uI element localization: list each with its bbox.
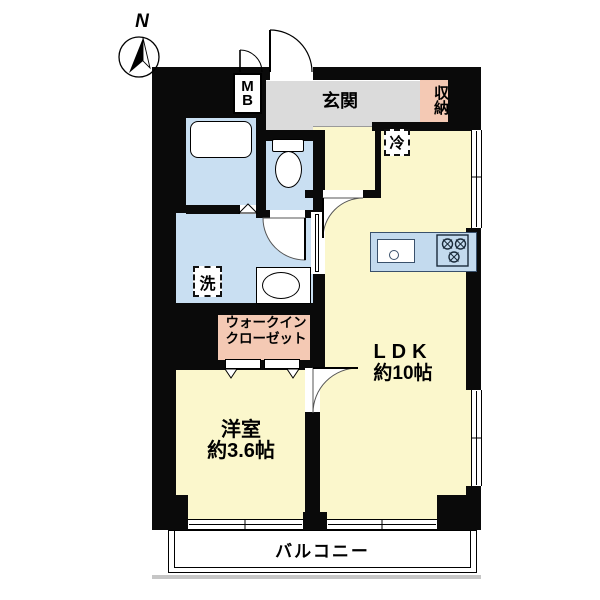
- wic-line2: クローゼット: [218, 331, 314, 347]
- wall-segment: [218, 303, 325, 315]
- wall-segment: [256, 118, 266, 218]
- wall-segment: [363, 190, 381, 198]
- window: [471, 130, 482, 228]
- wall-segment: [262, 67, 270, 80]
- wall-segment: [152, 495, 188, 530]
- bathtub: [190, 121, 252, 158]
- ldk-name: LDK: [343, 341, 463, 363]
- entrance-label: 玄関: [300, 92, 380, 112]
- refrigerator-label: 冷: [389, 132, 404, 153]
- shadow-line: [152, 575, 481, 579]
- western-room-name: 洋室: [181, 420, 301, 441]
- wall-segment: [186, 205, 240, 214]
- western-room-size: 約3.6帖: [181, 441, 301, 462]
- room-ldk: [313, 126, 473, 524]
- storage-label: 収納: [420, 79, 448, 121]
- western-room-label: 洋室 約3.6帖: [181, 420, 301, 462]
- window: [188, 519, 303, 530]
- balcony: バルコニー: [168, 530, 477, 573]
- meter-box-label-bottom: B: [242, 94, 253, 108]
- compass-label: N: [130, 12, 154, 33]
- wall-segment: [313, 130, 325, 212]
- toilet-bowl: [275, 151, 302, 188]
- closet-door-opening: [264, 359, 300, 369]
- wall-segment: [303, 512, 327, 530]
- wall-segment: [305, 412, 320, 524]
- sliding-door-leaf: [315, 214, 319, 272]
- window: [327, 519, 437, 530]
- wall-segment: [305, 190, 323, 198]
- wall-segment: [375, 126, 381, 198]
- walk-in-closet-label: ウォークイン クローゼット: [218, 315, 314, 347]
- entrance-door-arc: [270, 30, 312, 72]
- refrigerator-space: 冷: [384, 129, 410, 156]
- doorway-gap: [323, 190, 363, 198]
- doorway-gap: [270, 210, 305, 218]
- ldk-label: LDK 約10帖: [343, 341, 463, 385]
- balcony-label: バルコニー: [169, 537, 476, 562]
- ldk-size: 約10帖: [343, 363, 463, 385]
- washer-label: 洗: [199, 270, 215, 294]
- vanity-basin: [262, 272, 300, 299]
- floor-plan: M B 冷 洗 バルコニー: [0, 0, 600, 600]
- wall-segment: [176, 118, 186, 213]
- wall-segment: [152, 67, 176, 530]
- wall-segment: [176, 303, 218, 370]
- washer-space: 洗: [193, 266, 222, 297]
- closet-door-opening: [225, 359, 261, 369]
- kitchen-sink: [377, 239, 415, 263]
- window: [471, 390, 482, 486]
- wic-line1: ウォークイン: [218, 315, 314, 331]
- wall-segment: [437, 495, 481, 530]
- meter-box: M B: [233, 73, 262, 114]
- doorway-gap: [240, 205, 256, 214]
- doorway-gap: [305, 368, 320, 412]
